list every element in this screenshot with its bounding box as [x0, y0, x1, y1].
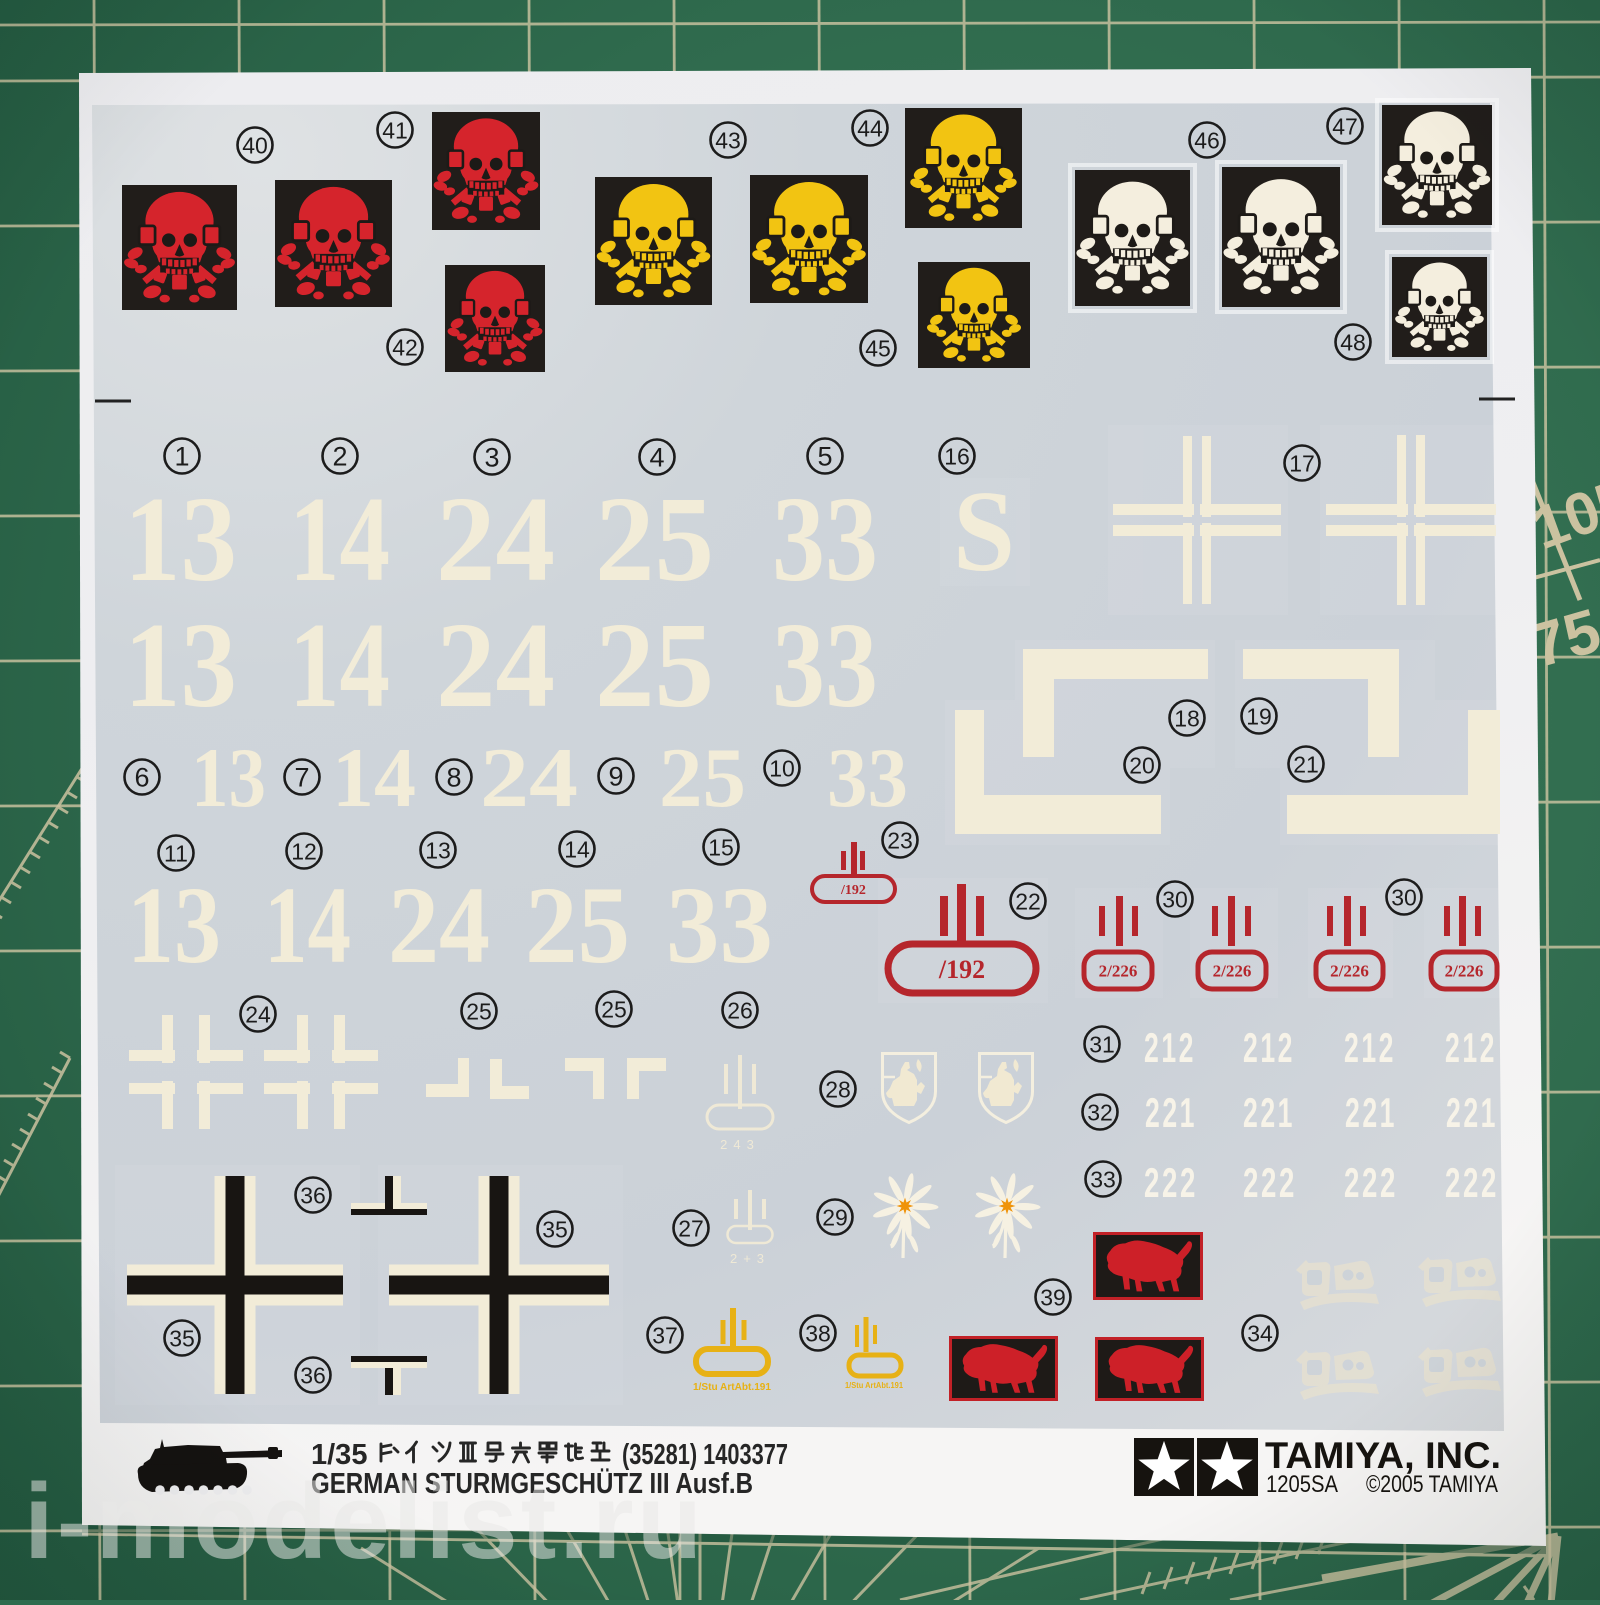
svg-text:i-modelist.ru: i-modelist.ru	[24, 1461, 705, 1581]
